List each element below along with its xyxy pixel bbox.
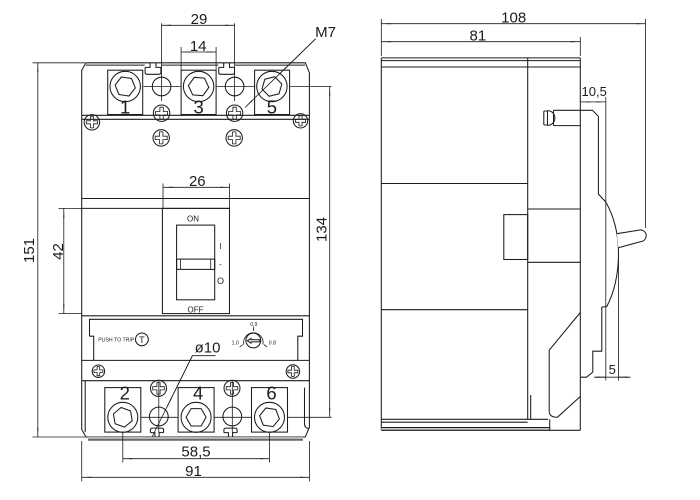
svg-text:29: 29 (191, 11, 208, 28)
svg-text:4: 4 (193, 383, 203, 404)
svg-text:151: 151 (21, 238, 38, 263)
svg-text:ø10: ø10 (195, 340, 221, 357)
svg-text:0.8: 0.8 (269, 341, 276, 347)
svg-text:10,5: 10,5 (582, 84, 607, 99)
svg-text:2: 2 (120, 383, 130, 404)
svg-text:5: 5 (267, 96, 277, 117)
svg-text:1: 1 (120, 96, 130, 117)
svg-text:14: 14 (190, 38, 207, 55)
svg-text:ON: ON (187, 215, 199, 224)
svg-text:81: 81 (470, 28, 487, 45)
svg-text:PUSH TO TRIP: PUSH TO TRIP (98, 337, 135, 343)
svg-text:91: 91 (185, 463, 202, 480)
svg-text:6: 6 (266, 383, 276, 404)
svg-text:0,9: 0,9 (250, 322, 257, 328)
svg-text:5: 5 (609, 362, 616, 377)
svg-text:58,5: 58,5 (181, 444, 210, 461)
svg-text:T: T (139, 335, 145, 345)
svg-text:3: 3 (193, 96, 203, 117)
svg-text:42: 42 (50, 243, 67, 260)
svg-text:1.0: 1.0 (232, 341, 239, 347)
svg-text:OFF: OFF (188, 306, 204, 315)
svg-text:134: 134 (314, 217, 331, 242)
svg-text:108: 108 (501, 10, 526, 27)
svg-text:M7: M7 (315, 24, 336, 41)
svg-text:O: O (217, 276, 224, 286)
svg-text:I: I (219, 242, 221, 251)
svg-text:-: - (219, 260, 222, 269)
svg-text:26: 26 (189, 173, 206, 190)
